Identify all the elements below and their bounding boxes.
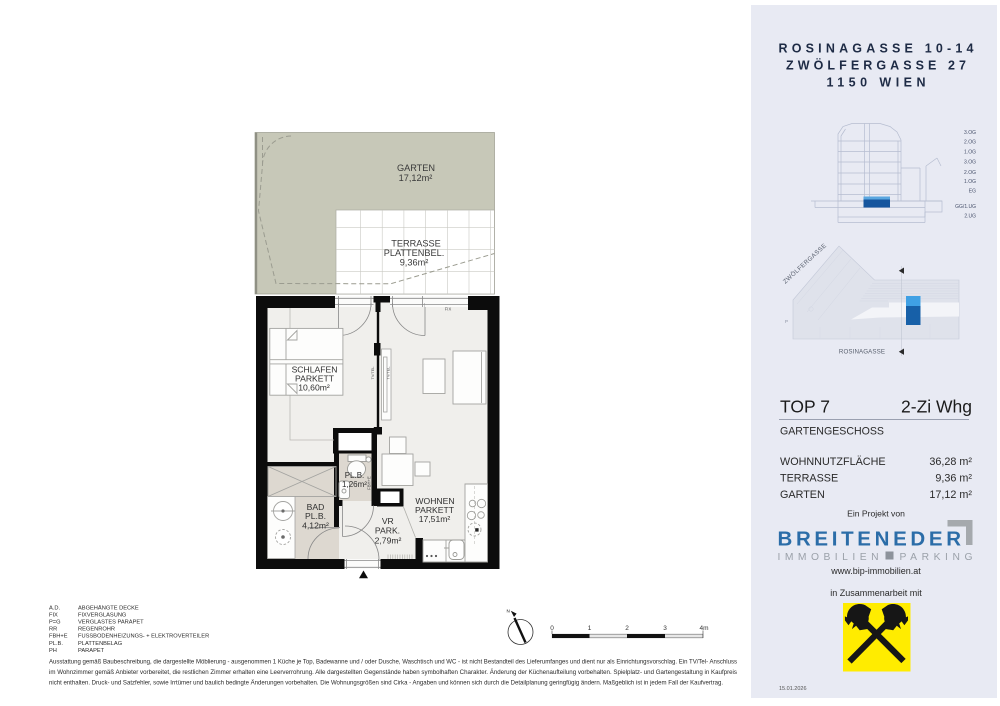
svg-text:2: 2 [625, 625, 629, 632]
svg-text:4m: 4m [699, 625, 708, 632]
svg-text:9,36m²: 9,36m² [400, 258, 429, 268]
svg-text:36,28 m²: 36,28 m² [929, 456, 972, 468]
svg-text:BREITENEDER: BREITENEDER [778, 528, 962, 551]
svg-text:www.bip-immobilien.at: www.bip-immobilien.at [830, 566, 921, 576]
svg-text:2.OG: 2.OG [964, 170, 976, 176]
svg-text:WOHNNUTZFLÄCHE: WOHNNUTZFLÄCHE [780, 456, 886, 468]
svg-text:TERRASSE: TERRASSE [780, 473, 838, 485]
svg-text:VERGLASTES PARAPET: VERGLASTES PARAPET [78, 619, 144, 625]
svg-text:10,60m²: 10,60m² [298, 383, 330, 393]
svg-text:VR: VR [382, 516, 394, 526]
svg-text:GG/1.UG: GG/1.UG [955, 204, 976, 210]
svg-text:17,12m²: 17,12m² [399, 173, 433, 183]
svg-text:Ein Projekt von: Ein Projekt von [847, 509, 905, 519]
svg-text:GARTEN: GARTEN [780, 489, 825, 501]
svg-text:TV/TEL: TV/TEL [371, 367, 375, 380]
svg-text:ROSINAGASSE: ROSINAGASSE [839, 349, 885, 356]
svg-text:PLATTENBEL.: PLATTENBEL. [384, 248, 445, 258]
svg-text:TERRASSE: TERRASSE [391, 239, 441, 249]
svg-text:FIX: FIX [445, 307, 452, 312]
svg-text:REGENROHR: REGENROHR [78, 627, 115, 633]
svg-text:TOP 7: TOP 7 [780, 397, 830, 417]
svg-text:PARK.: PARK. [375, 526, 400, 536]
svg-text:PH: PH [49, 648, 57, 654]
svg-text:FIXVERGLASUNG: FIXVERGLASUNG [78, 612, 126, 618]
svg-text:N: N [507, 609, 510, 614]
svg-text:4,12m²: 4,12m² [302, 520, 329, 530]
svg-text:RR: RR [49, 627, 57, 633]
svg-text:1.OG: 1.OG [964, 150, 976, 156]
svg-text:2.OG: 2.OG [964, 139, 976, 145]
svg-text:3.OG: 3.OG [964, 130, 976, 136]
svg-text:PL.B.: PL.B. [345, 471, 365, 480]
svg-text:17,51m²: 17,51m² [419, 514, 451, 524]
svg-text:1: 1 [588, 625, 592, 632]
svg-text:1.OG: 1.OG [964, 179, 976, 185]
svg-text:IMMOBILIEN: IMMOBILIEN [778, 552, 879, 563]
svg-text:A.D.: A.D. [49, 605, 60, 611]
svg-text:PLATTENBELAG: PLATTENBELAG [78, 641, 122, 647]
svg-text:EG: EG [969, 189, 976, 195]
svg-text:2,79m²: 2,79m² [375, 536, 402, 546]
svg-text:9,36 m²: 9,36 m² [935, 473, 972, 485]
svg-text:FIX: FIX [49, 612, 58, 618]
svg-text:Ausstattung gemäß Baubeschreib: Ausstattung gemäß Baubeschreibung, die d… [49, 659, 737, 666]
svg-text:2.UG: 2.UG [964, 214, 976, 220]
svg-text:FBH+E: FBH+E [49, 634, 68, 640]
svg-text:17,12 m²: 17,12 m² [929, 489, 972, 501]
svg-text:FUSSBODENHEIZUNGS- + ELEKTROVE: FUSSBODENHEIZUNGS- + ELEKTROVERTEILER [78, 634, 209, 640]
svg-text:in Zusammenarbeit mit: in Zusammenarbeit mit [830, 588, 922, 598]
svg-text:FBH+E: FBH+E [367, 476, 372, 490]
svg-text:nicht enthalten. Druck- und Sa: nicht enthalten. Druck- und Satzfehler, … [49, 678, 723, 686]
svg-text:ABGEHÄNGTE DECKE: ABGEHÄNGTE DECKE [78, 604, 139, 611]
svg-text:im Wohnzimmer gemäß Anbieter v: im Wohnzimmer gemäß Anbieter vorbereitet… [49, 668, 737, 676]
svg-text:TV/TEL: TV/TEL [387, 367, 391, 380]
svg-text:2-Zi Whg: 2-Zi Whg [901, 397, 972, 417]
svg-text:3: 3 [663, 625, 667, 632]
svg-text:PARAPET: PARAPET [78, 648, 105, 654]
svg-text:GARTENGESCHOSS: GARTENGESCHOSS [780, 426, 884, 438]
svg-text:GARTEN: GARTEN [397, 163, 435, 173]
svg-text:PL.B.: PL.B. [49, 641, 63, 647]
svg-text:P=G: P=G [49, 619, 61, 625]
svg-text:1,26m²: 1,26m² [342, 480, 367, 489]
svg-text:P: P [785, 319, 788, 324]
svg-text:3.OG: 3.OG [964, 160, 976, 166]
svg-text:15.01.2026: 15.01.2026 [779, 686, 807, 692]
